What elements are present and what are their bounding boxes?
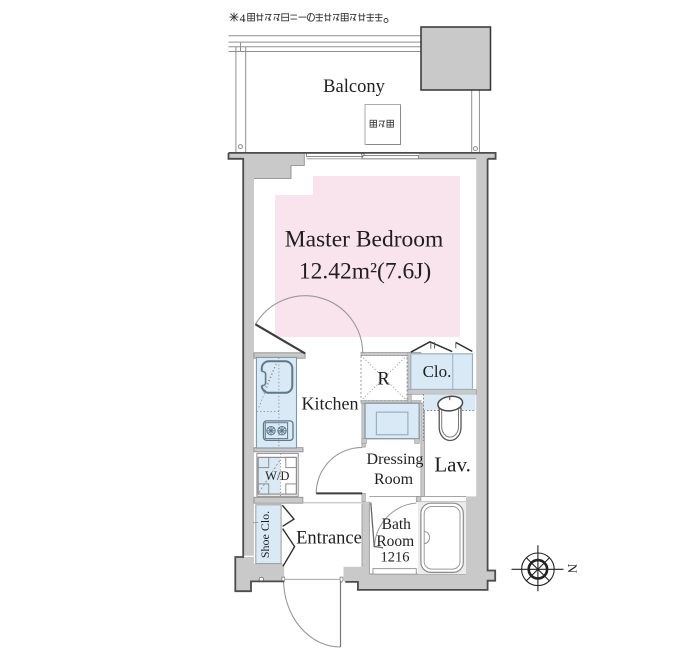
svg-text:Shoe Clo.: Shoe Clo. <box>258 511 272 558</box>
svg-text:Kitchen: Kitchen <box>302 394 359 414</box>
svg-text:Balcony: Balcony <box>323 77 385 97</box>
svg-text:Master Bedroom: Master Bedroom <box>285 227 444 253</box>
svg-text:Clo.: Clo. <box>423 362 452 381</box>
svg-text:W/D: W/D <box>265 469 289 483</box>
svg-text:12.42m²(7.6J): 12.42m²(7.6J) <box>299 258 431 284</box>
svg-text:Room: Room <box>376 533 414 550</box>
svg-text:Bath: Bath <box>382 516 412 533</box>
svg-text:4: 4 <box>240 11 246 25</box>
svg-text:1216: 1216 <box>381 550 410 566</box>
svg-text:Dressing: Dressing <box>367 451 424 468</box>
svg-text:Lav.: Lav. <box>434 453 471 477</box>
svg-text:N: N <box>565 564 580 574</box>
svg-text:Entrance: Entrance <box>296 529 362 549</box>
svg-text:Room: Room <box>374 471 414 488</box>
svg-text:R: R <box>377 370 390 390</box>
